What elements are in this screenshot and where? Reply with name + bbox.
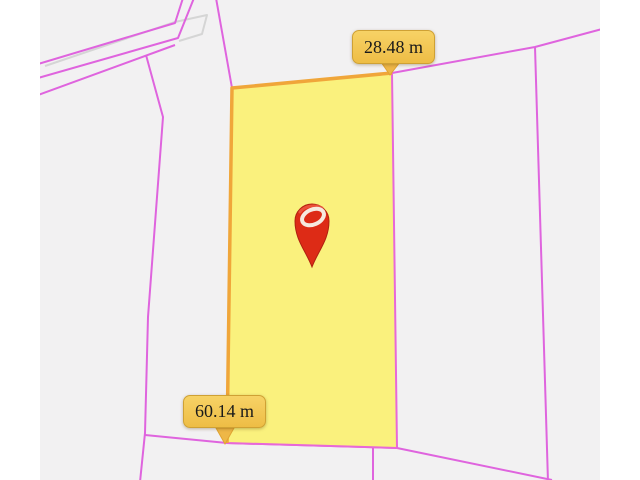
boundary-line-right	[535, 47, 548, 480]
map-viewport: 28.48 m 60.14 m	[0, 0, 640, 480]
right-margin	[600, 0, 640, 480]
boundary-line-left	[140, 55, 163, 480]
boundary-line-road-upper	[40, 0, 183, 64]
inactive-boundary-line	[45, 15, 207, 66]
map-canvas[interactable]: 28.48 m 60.14 m	[40, 0, 600, 480]
cadastral-map	[40, 0, 600, 480]
boundary-line-north	[216, 0, 232, 88]
left-margin	[0, 0, 40, 480]
measurement-label-left: 60.14 m	[183, 395, 266, 428]
measurement-label-top: 28.48 m	[352, 30, 435, 64]
